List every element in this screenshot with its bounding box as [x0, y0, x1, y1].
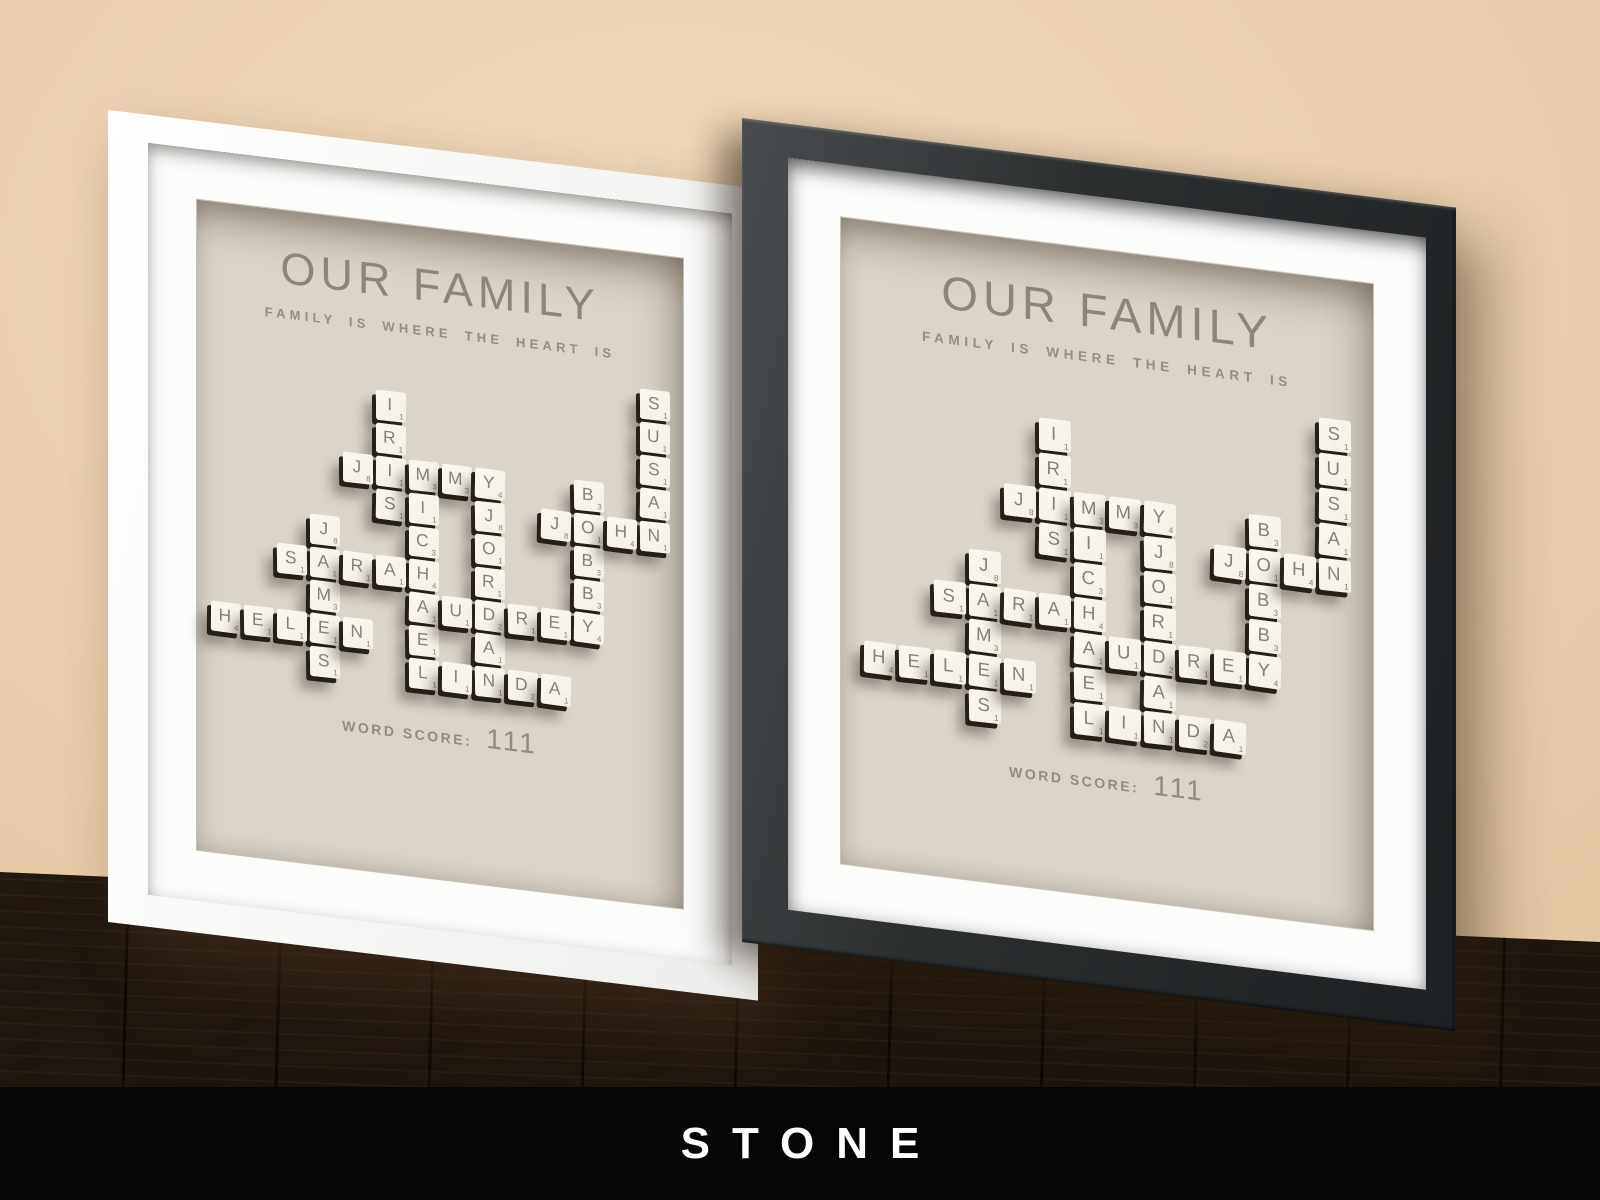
tile-value: 1	[993, 712, 998, 723]
tile-value: 1	[498, 688, 502, 697]
artwork-panel: OUR FAMILY FAMILY IS WHERE THE HEART IS …	[196, 199, 684, 910]
scrabble-tile: M3	[1073, 492, 1105, 528]
tile-letter: N	[1011, 662, 1025, 686]
tile-value: 3	[1098, 585, 1103, 596]
scrabble-tile: S1	[1038, 522, 1070, 558]
tile-letter: J	[352, 456, 361, 478]
scrabble-tile: J8	[540, 508, 570, 542]
tile-letter: R	[383, 426, 396, 449]
scrabble-tile: I1	[1038, 487, 1070, 523]
tile-letter: U	[647, 425, 660, 448]
tile-value: 8	[1028, 506, 1033, 517]
tile-letter: E	[977, 658, 990, 682]
brand-label: STONE	[659, 1119, 942, 1169]
scrabble-tile: H4	[408, 558, 438, 592]
tile-value: 1	[1203, 668, 1208, 679]
scrabble-tile: S1	[639, 388, 669, 421]
word-score-value: 111	[1153, 770, 1205, 808]
tile-value: 1	[1063, 616, 1068, 627]
artwork-title: OUR FAMILY	[841, 217, 1373, 373]
scrabble-tile: O1	[474, 533, 504, 566]
scrabble-tile: D2	[508, 669, 538, 703]
tile-value: 1	[663, 477, 667, 487]
tile-value: 1	[958, 603, 963, 614]
tile-value: 2	[1168, 664, 1173, 675]
tile-letter: E	[907, 649, 920, 672]
tile-letter: N	[1151, 715, 1165, 739]
tile-value: 1	[993, 677, 998, 688]
scrabble-tile: S1	[276, 543, 306, 576]
tile-value: 4	[596, 634, 600, 644]
tile-value: 1	[399, 445, 403, 455]
scrabble-tile: I1	[408, 492, 438, 525]
tile-letter: A	[548, 677, 560, 700]
scrabble-grid: S1U1S1A1N1I1R1I1S1J8M3M3Y4I1C3H4A1E1L1B3…	[864, 360, 1351, 768]
scrabble-tile: A1	[1318, 522, 1350, 558]
tile-value: 3	[1273, 607, 1278, 618]
tile-value: 4	[888, 664, 893, 675]
tile-value: 3	[597, 502, 601, 511]
tile-letter: S	[647, 393, 659, 415]
tile-letter: A	[1047, 597, 1060, 620]
tile-value: 3	[465, 486, 469, 496]
white-frame-molding: OUR FAMILY FAMILY IS WHERE THE HEART IS …	[108, 110, 758, 1001]
tile-letter: B	[581, 582, 593, 604]
tile-letter: I	[387, 394, 392, 416]
tile-value: 3	[1273, 642, 1278, 653]
scrabble-tile: N1	[1318, 558, 1350, 594]
tile-value: 1	[597, 535, 601, 544]
tile-letter: L	[417, 662, 427, 684]
artwork-title: OUR FAMILY	[197, 200, 683, 343]
tile-letter: H	[218, 604, 231, 627]
tile-letter: I	[453, 666, 458, 688]
tile-value: 8	[333, 536, 337, 545]
word-score-value: 111	[486, 723, 538, 761]
scrabble-tile: B3	[574, 545, 604, 579]
scrabble-tile: M3	[309, 579, 339, 613]
tile-letter: R	[1011, 592, 1025, 616]
scrabble-tile: A1	[474, 632, 504, 666]
tile-value: 1	[399, 478, 403, 488]
tile-letter: R	[350, 554, 363, 577]
scrabble-tile: S1	[1318, 487, 1350, 523]
scrabble-tile: H4	[863, 640, 895, 676]
tile-value: 8	[1168, 559, 1173, 570]
tile-value: 1	[1168, 734, 1173, 745]
tile-value: 1	[432, 515, 436, 524]
scrabble-tile: N1	[639, 521, 669, 554]
tile-value: 1	[1098, 725, 1103, 736]
scrabble-tile: J8	[1213, 544, 1245, 580]
tile-value: 3	[432, 548, 436, 558]
tile-value: 8	[498, 523, 502, 532]
scrabble-tile: M3	[408, 460, 438, 493]
scrabble-tile: O1	[1143, 570, 1175, 606]
scrabble-tile: B3	[573, 578, 603, 612]
tile-value: 1	[300, 631, 304, 641]
tile-value: 4	[1273, 677, 1278, 688]
tile-letter: C	[1082, 566, 1095, 590]
tile-value: 1	[497, 655, 501, 665]
tile-letter: D	[482, 603, 495, 626]
tile-value: 1	[1273, 572, 1278, 583]
tile-letter: S	[317, 650, 329, 672]
tile-letter: O	[481, 537, 495, 560]
scrabble-tile: E1	[1073, 667, 1105, 703]
scrabble-tile: D2	[474, 599, 504, 633]
tile-value: 1	[366, 639, 370, 648]
tile-value: 1	[333, 668, 337, 677]
scrabble-tile: E1	[408, 625, 438, 658]
tile-letter: U	[1116, 641, 1130, 665]
scrabble-tile: J8	[474, 501, 504, 534]
tile-value: 1	[1028, 612, 1033, 623]
scrabble-grid: S1U1S1A1N1I1R1I1S1J8M3M3Y4I1C3H4A1E1L1B3…	[211, 336, 670, 719]
scrabble-tile: U1	[640, 421, 670, 455]
tile-letter: A	[1327, 527, 1340, 551]
scrabble-tile: L1	[277, 608, 307, 642]
scrabble-tile: N1	[1143, 711, 1175, 747]
scrabble-tile: Y4	[474, 467, 504, 501]
tile-letter: S	[977, 693, 990, 716]
scrabble-tile: M3	[1109, 496, 1141, 532]
tile-letter: E	[1082, 671, 1095, 694]
tile-letter: M	[316, 583, 331, 606]
tile-letter: I	[1086, 532, 1091, 555]
tile-value: 1	[365, 573, 369, 583]
tile-value: 8	[563, 531, 567, 541]
tile-letter: S	[647, 458, 659, 480]
tile-letter: M	[415, 463, 430, 486]
scrabble-tile: N1	[1003, 658, 1035, 694]
tile-value: 3	[597, 601, 601, 611]
tile-value: 1	[498, 556, 502, 565]
tile-value: 4	[1308, 577, 1313, 588]
tile-value: 1	[399, 577, 403, 586]
scrabble-tile: I1	[1108, 706, 1140, 742]
scrabble-tile: I1	[375, 389, 405, 422]
tile-value: 1	[300, 565, 304, 574]
tile-value: 1	[1238, 743, 1243, 754]
black-frame-molding: OUR FAMILY FAMILY IS WHERE THE HEART IS …	[742, 118, 1456, 1032]
tile-letter: H	[871, 645, 885, 669]
tile-letter: H	[614, 520, 627, 543]
tile-letter: B	[581, 549, 593, 571]
tile-letter: I	[387, 460, 392, 482]
scrabble-tile: J8	[1143, 536, 1175, 572]
scrabble-tile: I1	[1073, 527, 1105, 563]
scrabble-tile: B3	[1248, 618, 1280, 654]
scrabble-tile: A1	[408, 591, 438, 625]
scrabble-tile: A1	[1073, 631, 1105, 667]
tile-value: 1	[1063, 546, 1068, 557]
scrabble-tile: B3	[573, 480, 603, 513]
tile-letter: N	[350, 621, 363, 643]
tile-value: 4	[1098, 620, 1103, 631]
tile-value: 3	[993, 642, 998, 653]
tile-letter: Y	[1152, 505, 1165, 529]
tile-letter: E	[416, 629, 428, 651]
tile-letter: B	[1257, 588, 1269, 612]
scrabble-tile: D2	[1179, 715, 1211, 751]
tile-letter: U	[1327, 457, 1340, 481]
tile-letter: B	[1257, 623, 1270, 647]
scrabble-tile: S1	[309, 646, 339, 679]
scrabble-tile: L1	[934, 649, 966, 685]
tile-letter: E	[317, 616, 329, 639]
tile-letter: A	[383, 559, 395, 581]
tile-letter: M	[448, 467, 463, 490]
tile-value: 1	[1063, 441, 1068, 452]
black-frame-mat: OUR FAMILY FAMILY IS WHERE THE HEART IS …	[788, 158, 1426, 990]
brand-bar: STONE	[0, 1087, 1600, 1200]
tile-letter: A	[1222, 724, 1235, 748]
tile-letter: A	[1152, 680, 1165, 704]
tile-letter: E	[548, 611, 560, 633]
scrabble-tile: S1	[639, 454, 669, 488]
tile-letter: S	[383, 492, 395, 515]
artwork-panel: OUR FAMILY FAMILY IS WHERE THE HEART IS …	[840, 216, 1374, 931]
scrabble-tile: U1	[1319, 452, 1351, 488]
tile-letter: D	[1187, 719, 1200, 743]
tile-letter: N	[1326, 562, 1340, 586]
tile-letter: L	[943, 654, 953, 677]
tile-value: 1	[332, 635, 336, 645]
tile-value: 1	[1028, 681, 1033, 692]
tile-letter: E	[251, 609, 263, 631]
scrabble-tile: M3	[442, 463, 472, 497]
tile-letter: H	[1291, 557, 1305, 581]
tile-letter: A	[977, 588, 989, 612]
scrabble-tile: A1	[1213, 719, 1245, 755]
scrabble-tile: A1	[540, 673, 570, 707]
tile-value: 8	[1238, 568, 1243, 579]
tile-value: 1	[398, 511, 402, 521]
scrabble-tile: L1	[408, 657, 438, 690]
scrabble-tile: U1	[441, 595, 471, 628]
scrabble-tile: U1	[1108, 636, 1140, 672]
tile-value: 1	[662, 510, 666, 520]
tile-value: 1	[1238, 673, 1243, 684]
scrabble-tile: E1	[1214, 649, 1246, 685]
scrabble-tile: R1	[1144, 605, 1176, 641]
tile-letter: O	[580, 516, 594, 539]
tile-value: 1	[1168, 699, 1173, 710]
tile-letter: A	[317, 551, 329, 573]
scrabble-tile: Y4	[573, 611, 603, 645]
tile-letter: I	[1051, 492, 1056, 515]
tile-letter: N	[482, 670, 495, 692]
tile-value: 1	[1063, 476, 1068, 487]
tile-letter: M	[975, 623, 991, 647]
tile-value: 1	[333, 569, 337, 579]
tile-letter: B	[1257, 518, 1270, 541]
scrabble-tile: I1	[1038, 417, 1070, 453]
tile-value: 1	[663, 411, 667, 420]
tile-value: 3	[1133, 520, 1138, 531]
scrabble-tile: N1	[342, 616, 372, 649]
scrabble-tile: A1	[375, 554, 405, 587]
tile-value: 1	[1133, 730, 1138, 741]
tile-value: 4	[497, 490, 501, 500]
scrabble-tile: Y4	[1248, 653, 1280, 689]
tile-value: 1	[563, 696, 567, 706]
scrabble-tile: R1	[1003, 588, 1035, 624]
tile-value: 1	[1063, 511, 1068, 522]
tile-value: 1	[923, 668, 928, 679]
scrabble-tile: H4	[606, 516, 636, 550]
scrabble-tile: E1	[541, 607, 571, 641]
tile-value: 1	[267, 627, 271, 636]
tile-letter: I	[420, 497, 425, 519]
word-score-label: WORD SCORE:	[342, 717, 472, 749]
tile-letter: L	[1083, 706, 1094, 729]
scrabble-tile: S1	[968, 689, 1000, 725]
tile-letter: L	[285, 613, 295, 635]
tile-value: 1	[1098, 655, 1103, 666]
scrabble-tile: R1	[1039, 452, 1071, 488]
tile-value: 1	[1098, 690, 1103, 701]
scrabble-tile: D2	[1143, 640, 1175, 676]
tile-value: 8	[993, 572, 998, 583]
tile-letter: J	[1013, 488, 1022, 511]
tile-value: 2	[531, 692, 535, 702]
scrabble-tile: E1	[968, 653, 1000, 689]
scrabble-tile: R1	[1178, 645, 1210, 681]
scrabble-tile: E1	[898, 645, 930, 681]
tile-value: 1	[465, 618, 469, 627]
tile-letter: O	[1151, 575, 1166, 599]
tile-value: 1	[1168, 629, 1173, 640]
tile-value: 3	[1273, 537, 1278, 548]
scrabble-tile: A1	[310, 546, 340, 580]
tile-letter: J	[550, 513, 559, 535]
tile-value: 3	[1098, 515, 1103, 526]
tile-value: 1	[432, 680, 436, 689]
scrabble-tile: R1	[475, 566, 505, 600]
tile-value: 1	[498, 589, 502, 599]
white-frame-mat: OUR FAMILY FAMILY IS WHERE THE HEART IS …	[148, 143, 732, 966]
white-frame: OUR FAMILY FAMILY IS WHERE THE HEART IS …	[108, 110, 758, 1001]
tile-value: 1	[1343, 511, 1348, 522]
tile-value: 1	[663, 543, 667, 552]
scrabble-tile: E1	[309, 612, 339, 646]
tile-letter: J	[978, 553, 987, 576]
scrabble-tile: I1	[441, 661, 471, 695]
tile-letter: M	[1115, 500, 1130, 524]
scrabble-tile: J8	[342, 451, 372, 484]
scrabble-tile: O1	[1248, 549, 1280, 585]
tile-value: 4	[432, 581, 436, 591]
scrabble-tile: L1	[1073, 702, 1105, 738]
tile-letter: C	[416, 529, 429, 552]
scrabble-tile: H4	[1283, 553, 1315, 589]
tile-letter: U	[449, 599, 462, 621]
tile-value: 1	[1098, 550, 1103, 561]
tile-letter: Y	[1257, 658, 1270, 682]
scrabble-tile: H4	[1073, 596, 1105, 632]
tile-value: 1	[1133, 660, 1138, 671]
scrabble-tile: J8	[309, 513, 339, 546]
tile-letter: H	[1081, 601, 1095, 625]
tile-letter: O	[1256, 553, 1271, 577]
tile-letter: B	[581, 484, 593, 506]
scrabble-tile: S1	[375, 488, 405, 522]
scrabble-tile: A1	[1143, 675, 1175, 711]
tile-letter: D	[515, 673, 528, 696]
tile-letter: Y	[581, 615, 593, 638]
scrabble-tile: I1	[375, 455, 405, 489]
scrabble-tile: E1	[243, 605, 273, 638]
tile-letter: R	[1186, 649, 1200, 673]
scrabble-tile: H4	[210, 600, 240, 634]
scrabble-tile: A1	[969, 583, 1001, 619]
tile-value: 2	[498, 622, 502, 632]
tile-value: 1	[1343, 546, 1348, 557]
tile-value: 1	[958, 673, 963, 684]
tile-letter: J	[1223, 549, 1233, 572]
tile-letter: H	[416, 562, 429, 585]
tile-value: 1	[1343, 581, 1348, 592]
tile-letter: J	[1153, 540, 1163, 563]
tile-value: 4	[234, 623, 238, 633]
tile-letter: S	[1327, 492, 1340, 516]
tile-value: 1	[663, 444, 667, 454]
tile-value: 1	[431, 614, 435, 624]
tile-value: 3	[333, 602, 337, 612]
tile-letter: J	[484, 505, 493, 527]
tile-letter: I	[1051, 422, 1056, 445]
tile-letter: S	[1047, 527, 1060, 551]
tile-value: 1	[993, 607, 998, 618]
tile-letter: R	[1047, 457, 1060, 481]
product-photo-scene: OUR FAMILY FAMILY IS WHERE THE HEART IS …	[0, 0, 1600, 1200]
tile-letter: S	[1327, 422, 1340, 445]
scrabble-tile: A1	[1038, 592, 1070, 628]
scrabble-tile: R1	[376, 422, 406, 456]
tile-value: 1	[564, 630, 568, 640]
tile-value: 3	[432, 482, 436, 491]
tile-value: 3	[597, 568, 601, 578]
tile-letter: A	[1082, 636, 1095, 660]
tile-letter: Y	[482, 471, 494, 494]
tile-letter: I	[1121, 711, 1126, 734]
scrabble-tile: N1	[474, 666, 504, 699]
tile-letter: R	[1152, 610, 1165, 634]
scrabble-tile: S1	[933, 579, 965, 615]
tile-letter: S	[284, 547, 296, 569]
scrabble-tile: C3	[1074, 562, 1106, 598]
scrabble-tile: J8	[968, 549, 1000, 585]
tile-value: 1	[1343, 476, 1348, 487]
tile-letter: R	[515, 608, 528, 630]
tile-value: 4	[1168, 524, 1173, 535]
tile-value: 1	[1343, 441, 1348, 452]
scrabble-tile: M3	[968, 618, 1000, 654]
tile-letter: E	[1222, 654, 1234, 678]
tile-letter: N	[647, 524, 660, 546]
tile-value: 8	[366, 474, 370, 483]
tile-letter: S	[942, 584, 955, 607]
tile-value: 2	[1203, 738, 1208, 749]
tile-letter: A	[647, 491, 659, 514]
tile-letter: R	[482, 570, 495, 593]
scrabble-tile: A1	[639, 487, 669, 521]
scrabble-tile: B3	[1249, 584, 1281, 620]
tile-value: 4	[630, 539, 634, 549]
scrabble-tile: C3	[409, 525, 439, 559]
